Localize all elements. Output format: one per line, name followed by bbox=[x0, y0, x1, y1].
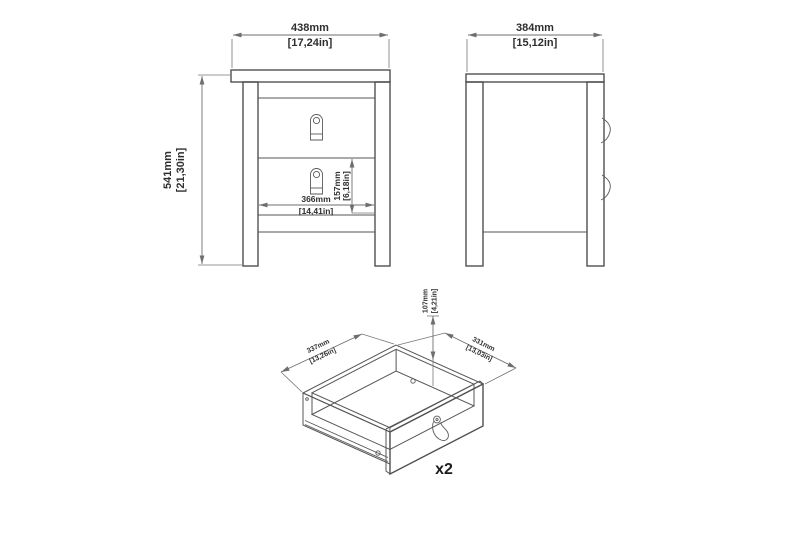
left-leg-front bbox=[243, 82, 258, 266]
front-height-mm-label: 541mm bbox=[162, 151, 174, 189]
drawer-rim-outer bbox=[303, 345, 483, 432]
drawer-handle-icon bbox=[311, 115, 323, 141]
front-width-dimension: 438mm [17,24in] bbox=[232, 22, 389, 68]
detail-height-in-label: [4,21in] bbox=[432, 289, 439, 314]
front-height-in-label: [21,30in] bbox=[175, 147, 187, 192]
handle-profile-icon bbox=[601, 118, 610, 143]
side-depth-dimension: 384mm [15,12in] bbox=[467, 22, 603, 72]
front-width-mm-label: 438mm bbox=[291, 22, 329, 34]
detail-height-mm-label: 107mm bbox=[423, 289, 430, 313]
drawer-rim-inner bbox=[312, 349, 474, 427]
side-view: 384mm [15,12in] bbox=[466, 22, 610, 266]
front-leg-side bbox=[587, 82, 604, 266]
panel-hole-icon bbox=[306, 398, 309, 401]
quantity-label: x2 bbox=[435, 461, 453, 478]
drawer-handle-3d-icon bbox=[433, 416, 449, 440]
side-depth-mm-label: 384mm bbox=[516, 22, 554, 34]
right-leg-front bbox=[375, 82, 390, 266]
side-depth-in-label: [15,12in] bbox=[513, 37, 558, 49]
drawer-floor bbox=[312, 371, 474, 449]
drawer-side-panel bbox=[303, 393, 390, 464]
drawer-width-in-label: [14,41in] bbox=[299, 206, 334, 216]
drawer-width-mm-label: 366mm bbox=[301, 194, 331, 204]
cam-fitting-icon bbox=[411, 379, 415, 383]
technical-drawing: 438mm [17,24in] 541mm [21,30in] 366mm [1… bbox=[0, 0, 800, 533]
drawer-height-in-label: [6,18in] bbox=[341, 171, 351, 201]
drawer-handle-icon bbox=[311, 169, 323, 195]
front-width-in-label: [17,24in] bbox=[288, 37, 333, 49]
detail-height-dimension: 107mm [4,21in] bbox=[423, 289, 440, 386]
handle-profile-icon bbox=[601, 175, 610, 200]
detail-depth-dimension: 337mm [13,26in] bbox=[281, 334, 394, 392]
tabletop-front bbox=[231, 70, 390, 82]
drawer-detail-view: 337mm [13,26in] 331mm [13,03in] 107mm [4… bbox=[281, 289, 516, 478]
back-leg-side bbox=[466, 82, 483, 266]
front-height-dimension: 541mm [21,30in] bbox=[162, 75, 242, 265]
tabletop-side bbox=[466, 74, 604, 82]
front-view: 438mm [17,24in] 541mm [21,30in] 366mm [1… bbox=[162, 22, 390, 266]
technical-drawing-page: 438mm [17,24in] 541mm [21,30in] 366mm [1… bbox=[0, 0, 800, 533]
